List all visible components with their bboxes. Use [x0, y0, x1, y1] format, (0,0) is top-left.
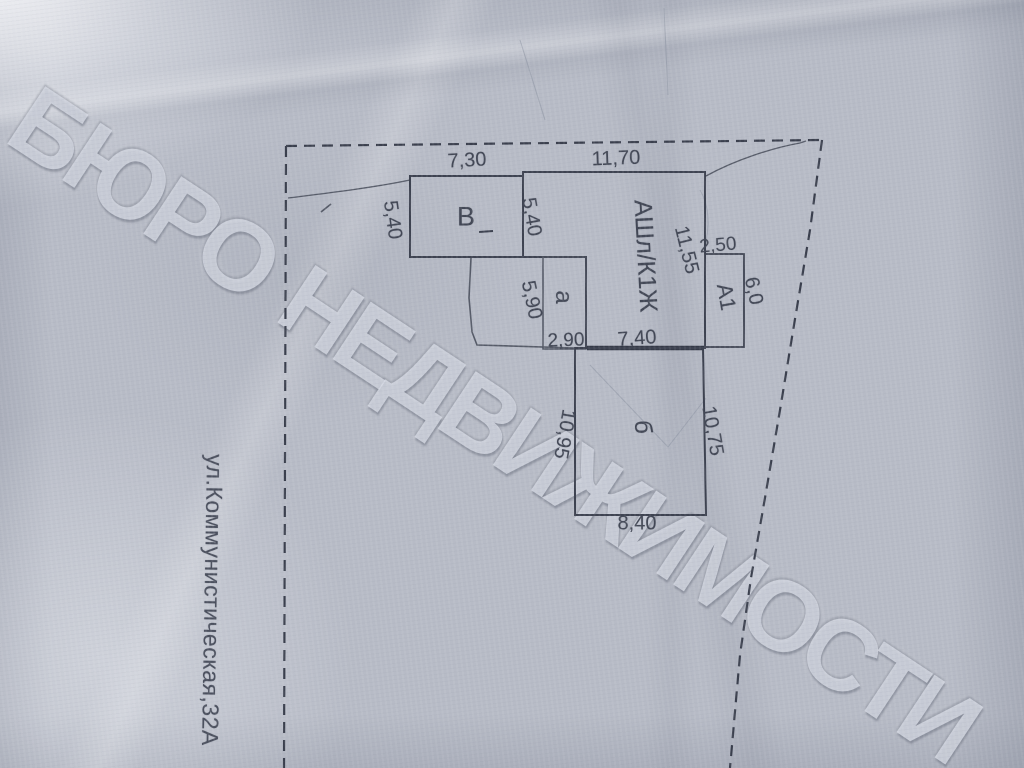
label-v-dash-mark	[479, 231, 493, 232]
stray-tick	[321, 204, 331, 212]
street-address-label: ул.Коммунистическая,32А	[196, 454, 228, 746]
dim-main-top: 11,70	[591, 147, 640, 172]
dim-b-bottom: 8,40	[618, 513, 657, 536]
fence-left-front	[288, 180, 410, 198]
building-main-label: АШл/К1Ж	[628, 199, 663, 313]
boundary-top	[286, 140, 822, 146]
dim-a-bottom: 2,90	[547, 329, 585, 352]
building-a1-label: А1	[711, 281, 741, 312]
plan-drawing	[0, 0, 1024, 768]
scanned-site-plan: БЮРО НЕДВИЖИМОСТИ	[0, 0, 1024, 768]
dim-main-bottom: 7,40	[617, 326, 657, 352]
dim-v-top: 7,30	[447, 148, 487, 173]
boundary-right	[730, 140, 822, 768]
building-a-label: а	[549, 290, 577, 303]
boundary-left	[284, 146, 286, 768]
building-v-label: В	[457, 202, 475, 233]
fence-right-front	[706, 141, 806, 176]
building-b-label: б	[628, 420, 656, 434]
dim-a1-top: 2,50	[699, 233, 738, 258]
